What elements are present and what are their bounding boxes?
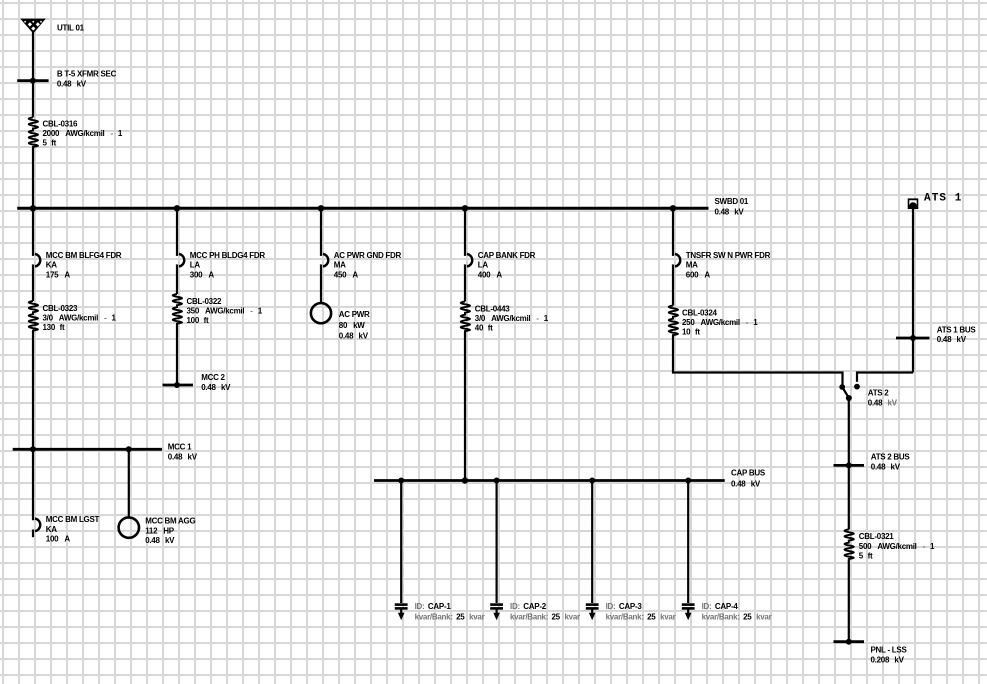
svg-text:CBL-0324: CBL-0324 bbox=[682, 308, 717, 317]
svg-text:MCC BM AGG: MCC BM AGG bbox=[145, 517, 195, 526]
svg-text:KA: KA bbox=[46, 525, 57, 534]
svg-text:SWBD 01: SWBD 01 bbox=[715, 197, 749, 206]
svg-text:ID:CAP-3: ID:CAP-3 bbox=[606, 602, 643, 611]
svg-text:300A: 300A bbox=[190, 270, 215, 279]
svg-text:ATS 1 BUS: ATS 1 BUS bbox=[937, 326, 977, 335]
svg-text:kvar/Bank:25kvar: kvar/Bank:25kvar bbox=[415, 613, 485, 622]
svg-text:MCC BM LGST: MCC BM LGST bbox=[46, 515, 100, 524]
svg-text:KA: KA bbox=[46, 261, 57, 270]
svg-text:400A: 400A bbox=[478, 270, 503, 279]
svg-text:450A: 450A bbox=[334, 270, 359, 279]
svg-text:ID:CAP-1: ID:CAP-1 bbox=[415, 602, 452, 611]
svg-text:CBL-0321: CBL-0321 bbox=[859, 532, 894, 541]
svg-text:CBL-0316: CBL-0316 bbox=[43, 119, 78, 128]
svg-text:350AWG/kcmil-1: 350AWG/kcmil-1 bbox=[187, 307, 263, 316]
svg-text:130ft: 130ft bbox=[43, 323, 65, 332]
svg-text:MCC PH BLDG4 FDR: MCC PH BLDG4 FDR bbox=[190, 251, 266, 260]
svg-text:MCC 2: MCC 2 bbox=[201, 373, 225, 382]
svg-text:CBL-0443: CBL-0443 bbox=[475, 304, 510, 313]
svg-text:100A: 100A bbox=[46, 535, 71, 544]
svg-text:kvar/Bank:25kvar: kvar/Bank:25kvar bbox=[702, 613, 772, 622]
svg-text:600A: 600A bbox=[686, 270, 711, 279]
svg-text:ATS 2 BUS: ATS 2 BUS bbox=[871, 452, 911, 461]
svg-text:kvar/Bank:25kvar: kvar/Bank:25kvar bbox=[510, 613, 580, 622]
svg-text:LA: LA bbox=[478, 261, 489, 270]
svg-text:LA: LA bbox=[190, 261, 201, 270]
svg-text:2000AWG/kcmil-1: 2000AWG/kcmil-1 bbox=[43, 129, 123, 138]
svg-text:PNL - LSS: PNL - LSS bbox=[871, 645, 908, 654]
svg-text:ATS 1: ATS 1 bbox=[924, 192, 963, 204]
svg-text:MA: MA bbox=[334, 261, 346, 270]
svg-text:175A: 175A bbox=[46, 270, 71, 279]
svg-text:AC PWR GND FDR: AC PWR GND FDR bbox=[334, 251, 402, 260]
svg-text:B T-5 XFMR SEC: B T-5 XFMR SEC bbox=[57, 70, 117, 79]
svg-text:TNSFR SW N PWR FDR: TNSFR SW N PWR FDR bbox=[686, 251, 771, 260]
svg-text:ID:CAP-2: ID:CAP-2 bbox=[510, 602, 547, 611]
svg-text:kvar/Bank:25kvar: kvar/Bank:25kvar bbox=[606, 613, 676, 622]
svg-text:MCC BM BLFG4 FDR: MCC BM BLFG4 FDR bbox=[46, 251, 122, 260]
svg-text:CAP BUS: CAP BUS bbox=[731, 469, 766, 478]
svg-text:ATS 2: ATS 2 bbox=[868, 388, 890, 397]
svg-text:UTIL 01: UTIL 01 bbox=[57, 24, 85, 33]
svg-text:CBL-0323: CBL-0323 bbox=[43, 304, 78, 313]
svg-text:CAP BANK FDR: CAP BANK FDR bbox=[478, 251, 536, 260]
svg-text:MA: MA bbox=[686, 261, 698, 270]
svg-text:100ft: 100ft bbox=[187, 316, 209, 325]
svg-text:250AWG/kcmil-1: 250AWG/kcmil-1 bbox=[682, 318, 758, 327]
svg-text:ID:CAP-4: ID:CAP-4 bbox=[702, 602, 739, 611]
svg-text:CBL-0322: CBL-0322 bbox=[187, 297, 222, 306]
svg-text:MCC 1: MCC 1 bbox=[168, 443, 192, 452]
svg-text:AC PWR: AC PWR bbox=[339, 310, 370, 319]
svg-text:500AWG/kcmil-1: 500AWG/kcmil-1 bbox=[859, 542, 935, 551]
svg-text:0.208kV: 0.208kV bbox=[871, 656, 905, 665]
